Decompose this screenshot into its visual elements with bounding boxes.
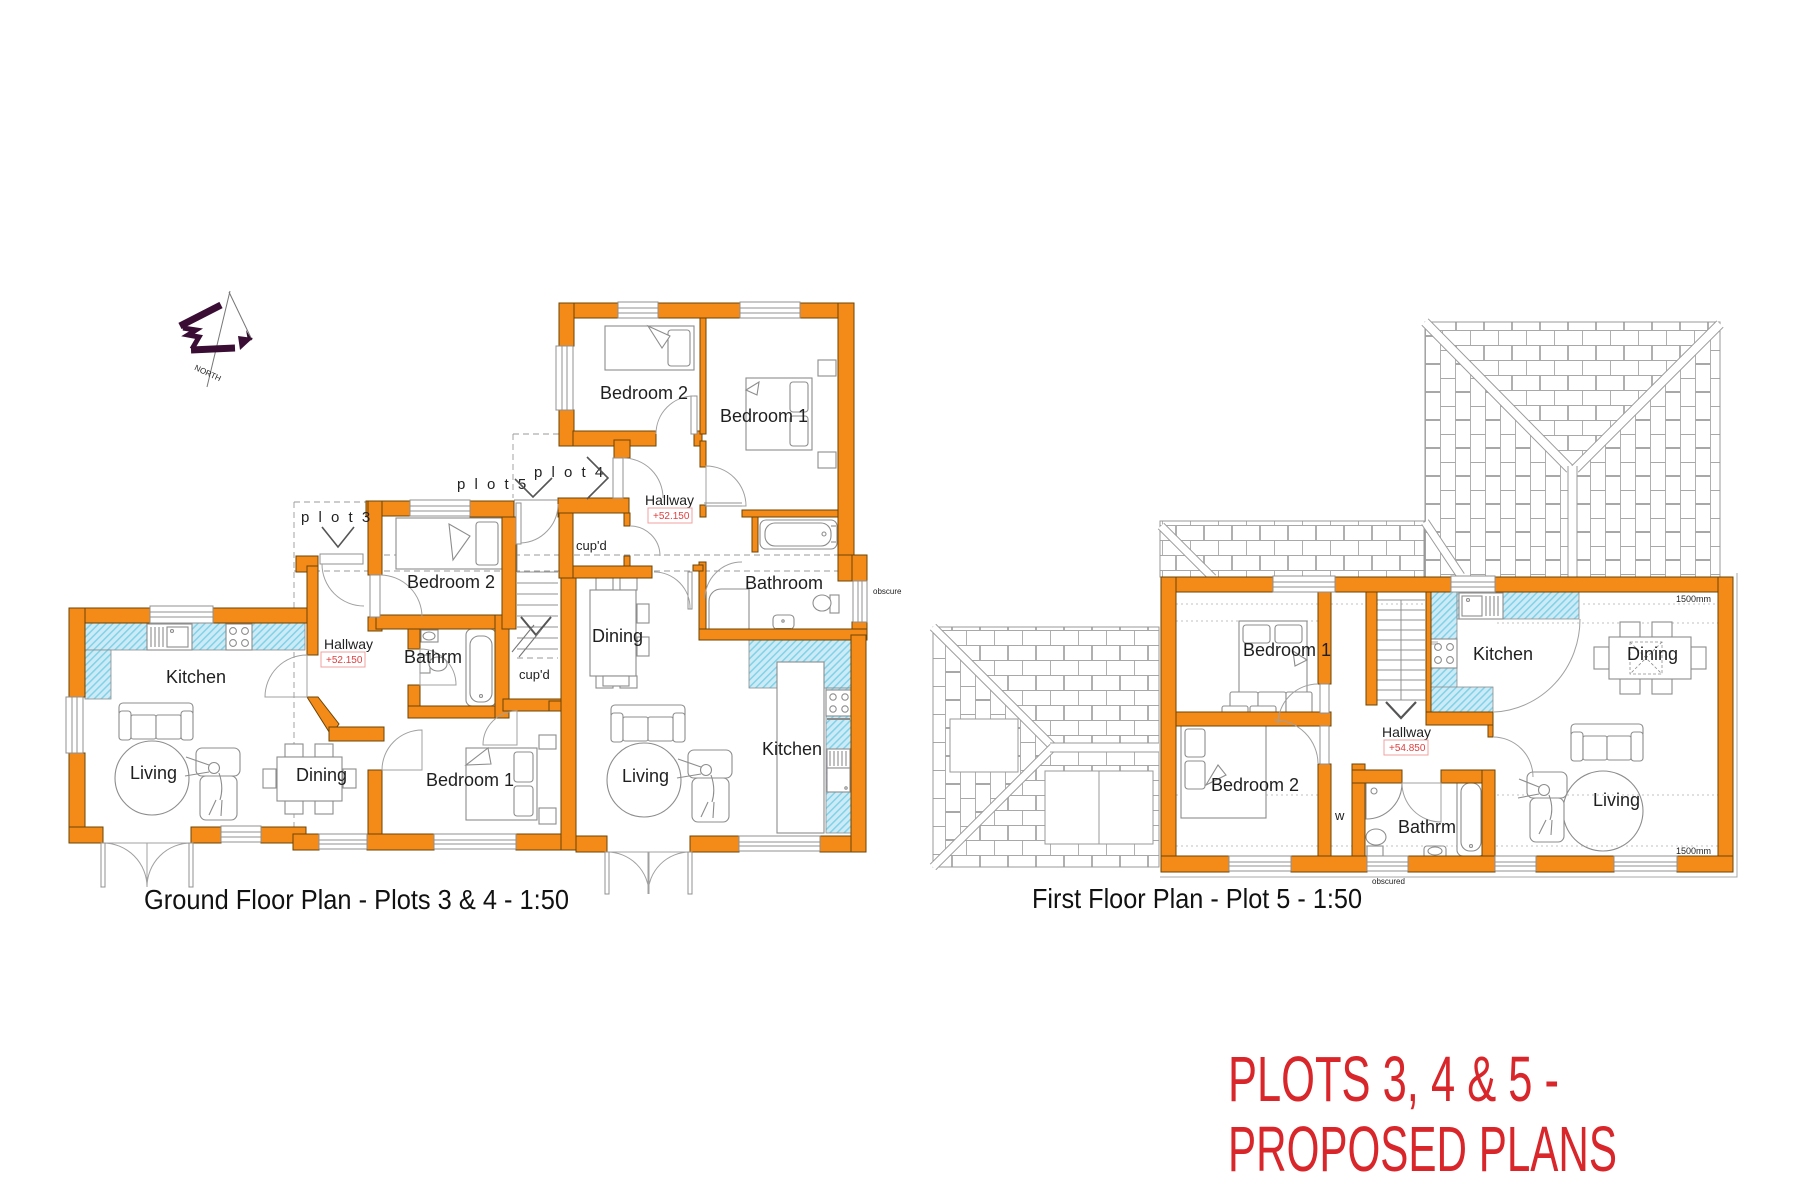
svg-text:+52.150: +52.150 — [653, 511, 690, 522]
svg-text:cup'd: cup'd — [519, 667, 550, 682]
svg-text:Bedroom 1: Bedroom 1 — [720, 406, 808, 426]
svg-text:Bedroom 2: Bedroom 2 — [407, 572, 495, 592]
svg-text:1500mm: 1500mm — [1676, 846, 1711, 856]
svg-text:Dining: Dining — [296, 765, 347, 785]
svg-text:Bedroom 1: Bedroom 1 — [1243, 640, 1331, 660]
svg-text:Bedroom 2: Bedroom 2 — [600, 383, 688, 403]
svg-text:Living: Living — [130, 763, 177, 783]
svg-text:p l o t 3: p l o t 3 — [301, 509, 373, 526]
svg-text:First Floor Plan - Plot 5 - 1:: First Floor Plan - Plot 5 - 1:50 — [1032, 883, 1362, 914]
svg-text:PLOTS 3, 4 & 5 -: PLOTS 3, 4 & 5 - — [1228, 1043, 1559, 1115]
svg-text:Kitchen: Kitchen — [1473, 644, 1533, 664]
svg-text:Ground Floor Plan - Plots 3 &: Ground Floor Plan - Plots 3 & 4 - 1:50 — [144, 884, 569, 915]
svg-text:Bedroom 2: Bedroom 2 — [1211, 775, 1299, 795]
svg-text:Dining: Dining — [1627, 644, 1678, 664]
svg-text:p l o t 4: p l o t 4 — [534, 464, 606, 481]
svg-text:w: w — [1334, 808, 1345, 823]
svg-text:+52.150: +52.150 — [326, 655, 363, 666]
svg-text:1500mm: 1500mm — [1676, 594, 1711, 604]
svg-text:obscure: obscure — [873, 587, 902, 596]
svg-text:Bathrm: Bathrm — [404, 647, 462, 667]
svg-text:Hallway: Hallway — [645, 492, 694, 508]
svg-text:Living: Living — [1593, 790, 1640, 810]
svg-text:Living: Living — [622, 766, 669, 786]
svg-text:PROPOSED PLANS: PROPOSED PLANS — [1228, 1113, 1617, 1185]
svg-text:Kitchen: Kitchen — [762, 739, 822, 759]
svg-text:Kitchen: Kitchen — [166, 667, 226, 687]
svg-text:Dining: Dining — [592, 626, 643, 646]
svg-text:Hallway: Hallway — [1382, 724, 1431, 740]
svg-text:Bathrm: Bathrm — [1398, 817, 1456, 837]
svg-text:cup'd: cup'd — [576, 538, 607, 553]
svg-text:+54.850: +54.850 — [1389, 743, 1426, 754]
svg-text:Bedroom 1: Bedroom 1 — [426, 770, 514, 790]
svg-text:p l o t 5: p l o t 5 — [457, 476, 529, 493]
svg-text:obscured: obscured — [1372, 877, 1405, 886]
svg-text:Bathroom: Bathroom — [745, 573, 823, 593]
svg-text:Hallway: Hallway — [324, 636, 373, 652]
